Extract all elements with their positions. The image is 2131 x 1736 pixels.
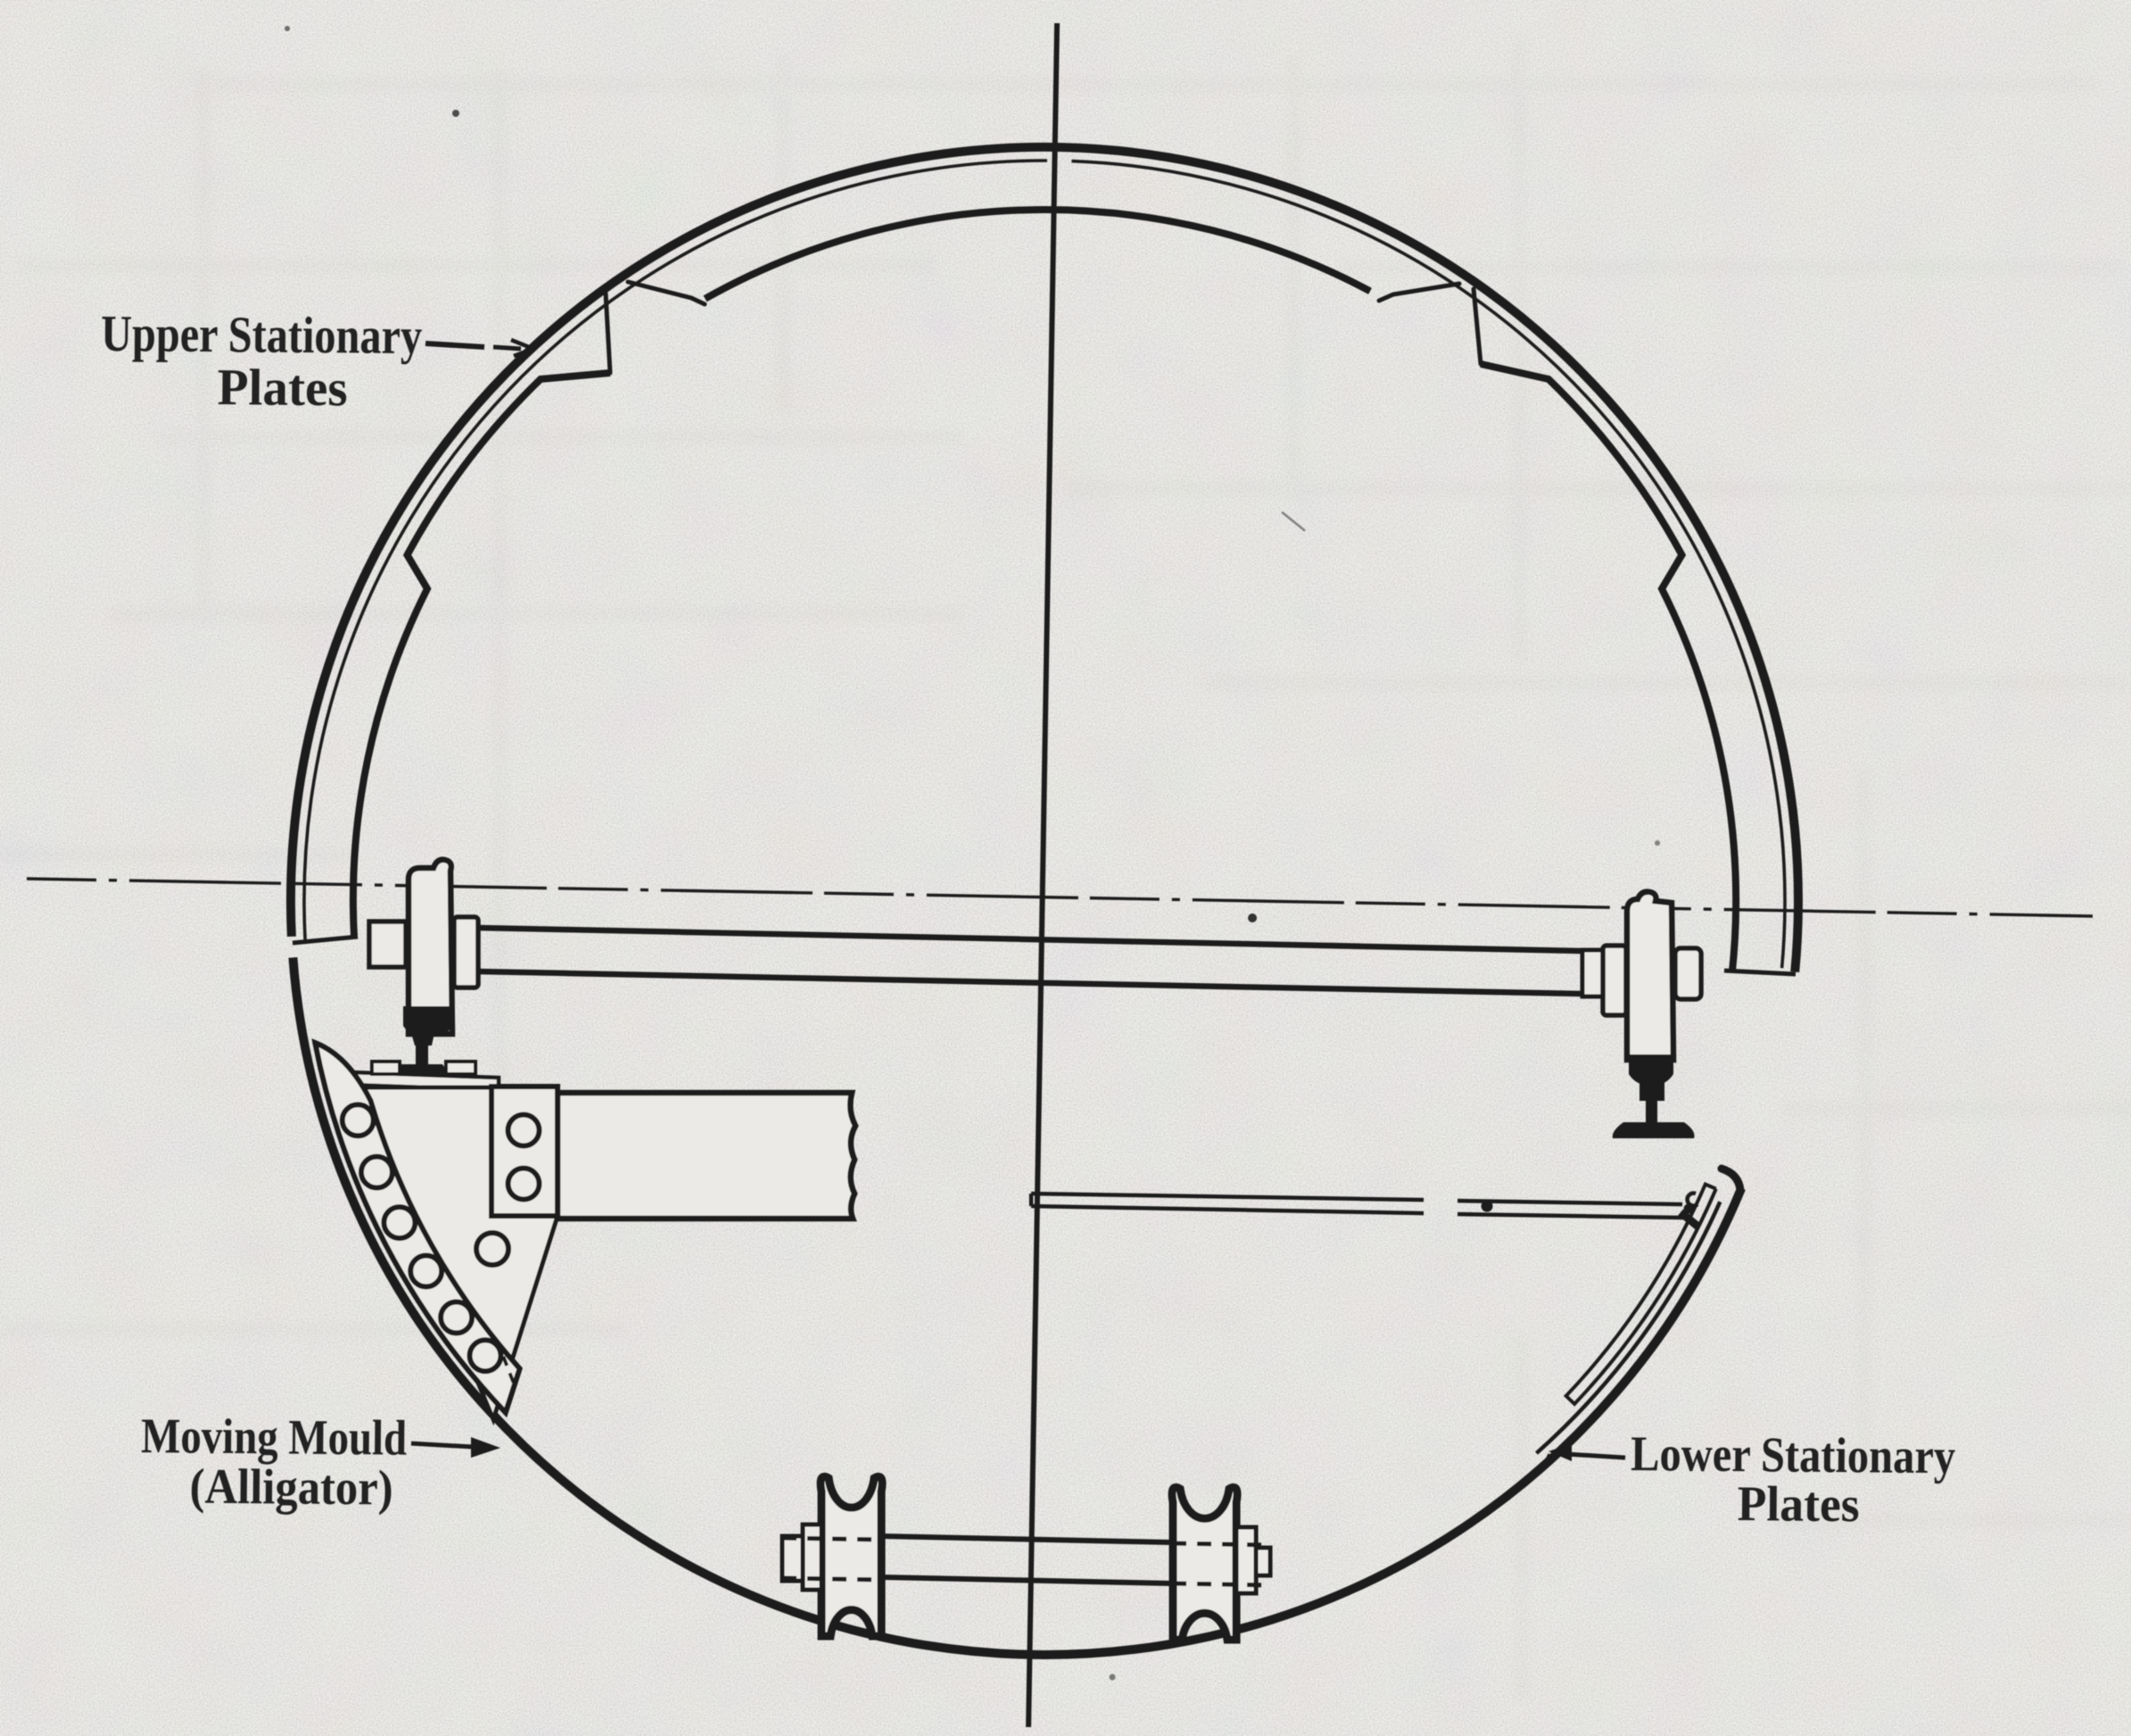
- svg-text:Moving Mould: Moving Mould: [141, 1409, 408, 1467]
- svg-text:Plates: Plates: [1737, 1476, 1860, 1533]
- svg-text:Lower Stationary: Lower Stationary: [1631, 1426, 1956, 1484]
- svg-text:(Alligator): (Alligator): [189, 1459, 393, 1516]
- svg-text:Plates: Plates: [217, 358, 348, 417]
- svg-text:Upper Stationary: Upper Stationary: [101, 304, 423, 365]
